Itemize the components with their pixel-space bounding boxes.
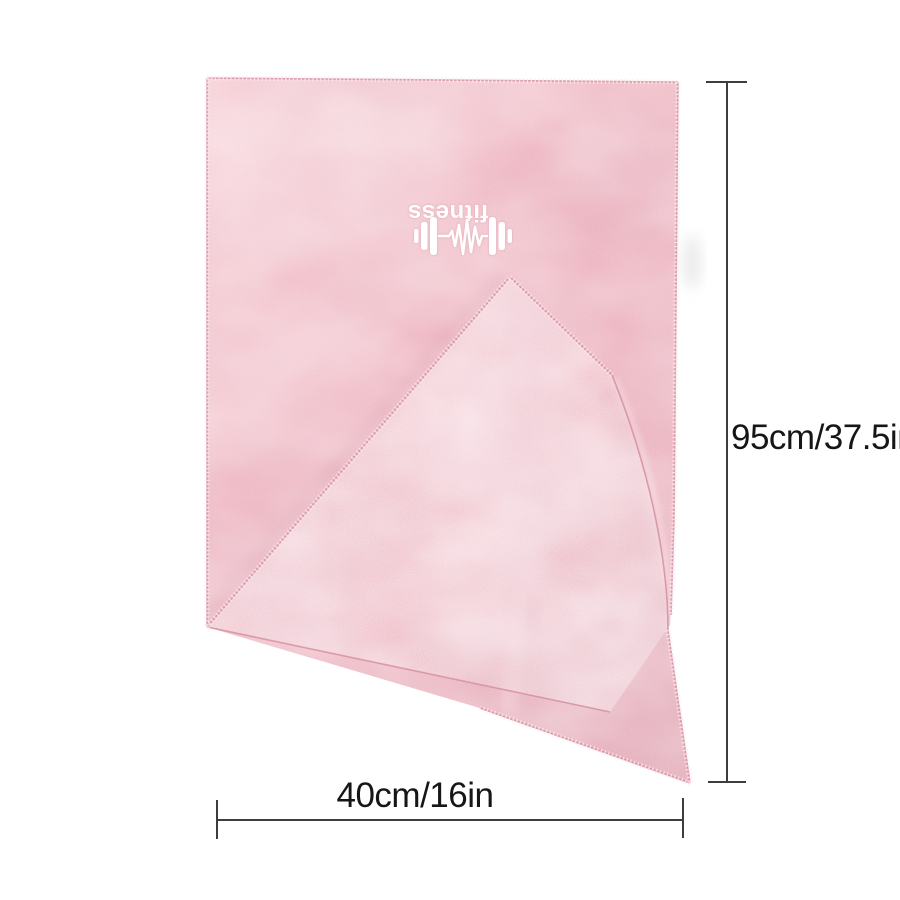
dumbbell-heartbeat-icon (413, 214, 513, 258)
width-dimension-label: 40cm/16in (300, 777, 530, 815)
height-dimension-label: 95cm/37.5in (731, 419, 900, 457)
product-image: fitness 95cm/37.5in 40cm/16in (0, 0, 900, 900)
embroidered-logo: fitness (383, 166, 513, 258)
soft-shadow (683, 235, 701, 289)
